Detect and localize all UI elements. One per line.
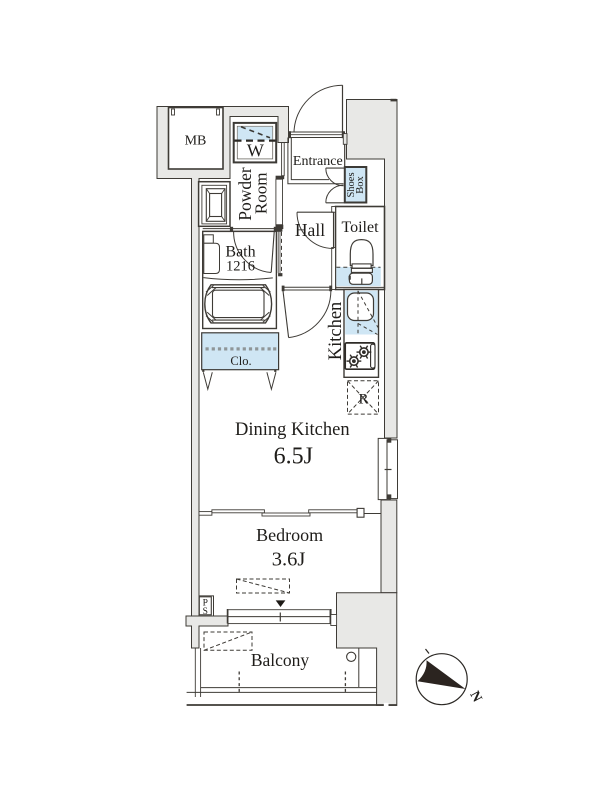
svg-text:MB: MB bbox=[185, 133, 207, 148]
svg-text:S: S bbox=[203, 607, 208, 617]
svg-text:Dining Kitchen: Dining Kitchen bbox=[235, 420, 350, 440]
svg-text:Box: Box bbox=[355, 176, 366, 194]
svg-text:Toilet: Toilet bbox=[341, 219, 379, 236]
svg-text:Clo.: Clo. bbox=[230, 354, 251, 368]
svg-text:W: W bbox=[247, 141, 264, 161]
svg-text:Hall: Hall bbox=[295, 220, 325, 240]
svg-text:Entrance: Entrance bbox=[293, 154, 343, 169]
svg-text:1216: 1216 bbox=[226, 259, 255, 275]
svg-text:6.5J: 6.5J bbox=[274, 444, 313, 470]
svg-text:Bedroom: Bedroom bbox=[256, 525, 323, 545]
svg-text:Kitchen: Kitchen bbox=[326, 302, 346, 361]
svg-text:Balcony: Balcony bbox=[251, 650, 310, 670]
svg-text:3.6J: 3.6J bbox=[272, 549, 306, 571]
svg-text:Room: Room bbox=[251, 173, 270, 215]
svg-text:R: R bbox=[358, 392, 368, 408]
